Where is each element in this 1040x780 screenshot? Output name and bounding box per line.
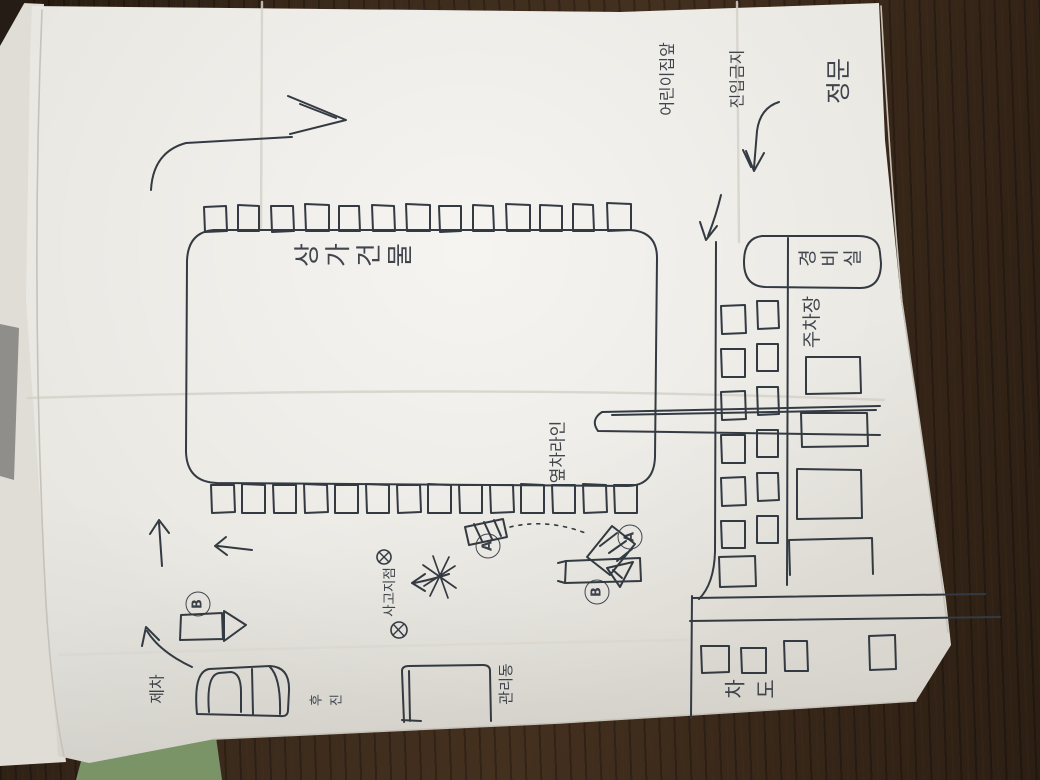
parked-car-outline bbox=[196, 666, 289, 716]
entry-arrow-2 bbox=[700, 195, 721, 240]
management-building-label: 관리동 bbox=[496, 663, 518, 704]
parking-stall-row-bottom bbox=[211, 484, 637, 513]
parking-stalls-right-columns bbox=[719, 301, 779, 587]
entry-road-lines bbox=[595, 406, 880, 435]
building-label: 상가건물 bbox=[294, 237, 411, 274]
vehicle-b-arrow-box bbox=[180, 611, 246, 641]
vehicle-a-arrowhead bbox=[607, 562, 633, 587]
parking-stall-row-top bbox=[204, 203, 631, 232]
parking-lot-label: 주차장 bbox=[799, 296, 827, 348]
reversing-label: 후진 bbox=[309, 691, 341, 710]
side-parking-line-label: 옆차라인 bbox=[547, 421, 572, 484]
roadway-label: 차도 bbox=[725, 674, 776, 704]
notice-line2: 진입금지 bbox=[725, 42, 748, 116]
accident-point-label: 사고지점 bbox=[381, 567, 401, 617]
notice-label: 어린이집앞 진입금지 bbox=[609, 42, 795, 116]
vehicle-a-badge-start: A bbox=[476, 534, 501, 559]
ink-drawing-layer bbox=[0, 0, 1040, 780]
security-office-label: 경비실 bbox=[798, 245, 860, 272]
reversing-label-text: 후진 bbox=[309, 691, 341, 710]
main-gate-label: 정문 bbox=[821, 58, 857, 104]
photo-hand-drawn-accident-sketch: 상가건물 옆차라인 사고지점 제차 후진 관리동 정문 어린이집앞 진입금지 경… bbox=[0, 0, 1040, 780]
arrow-up bbox=[150, 520, 169, 566]
vehicle-a-badge-moving: A bbox=[618, 525, 643, 550]
building-outline bbox=[186, 230, 657, 486]
vehicle-b-badge-parked: B bbox=[186, 592, 211, 617]
arrow-left bbox=[215, 537, 252, 555]
parking-stalls-right-large bbox=[789, 357, 873, 575]
big-curved-arrow bbox=[151, 96, 346, 190]
vehicle-a-path-dotted bbox=[510, 524, 588, 534]
security-office-label-text: 경비실 bbox=[798, 245, 860, 272]
reversing-curved-arrow bbox=[142, 627, 192, 667]
my-car-label: 제차 bbox=[145, 674, 168, 703]
vehicle-b-badge-center: B bbox=[585, 580, 610, 605]
management-building-outline bbox=[402, 665, 491, 722]
notice-line1: 어린이집앞 bbox=[656, 42, 679, 116]
building-label-text: 상가건물 bbox=[294, 237, 411, 274]
roadway-label-text: 차도 bbox=[725, 674, 776, 704]
parking-stalls-bottom-right bbox=[701, 635, 896, 673]
